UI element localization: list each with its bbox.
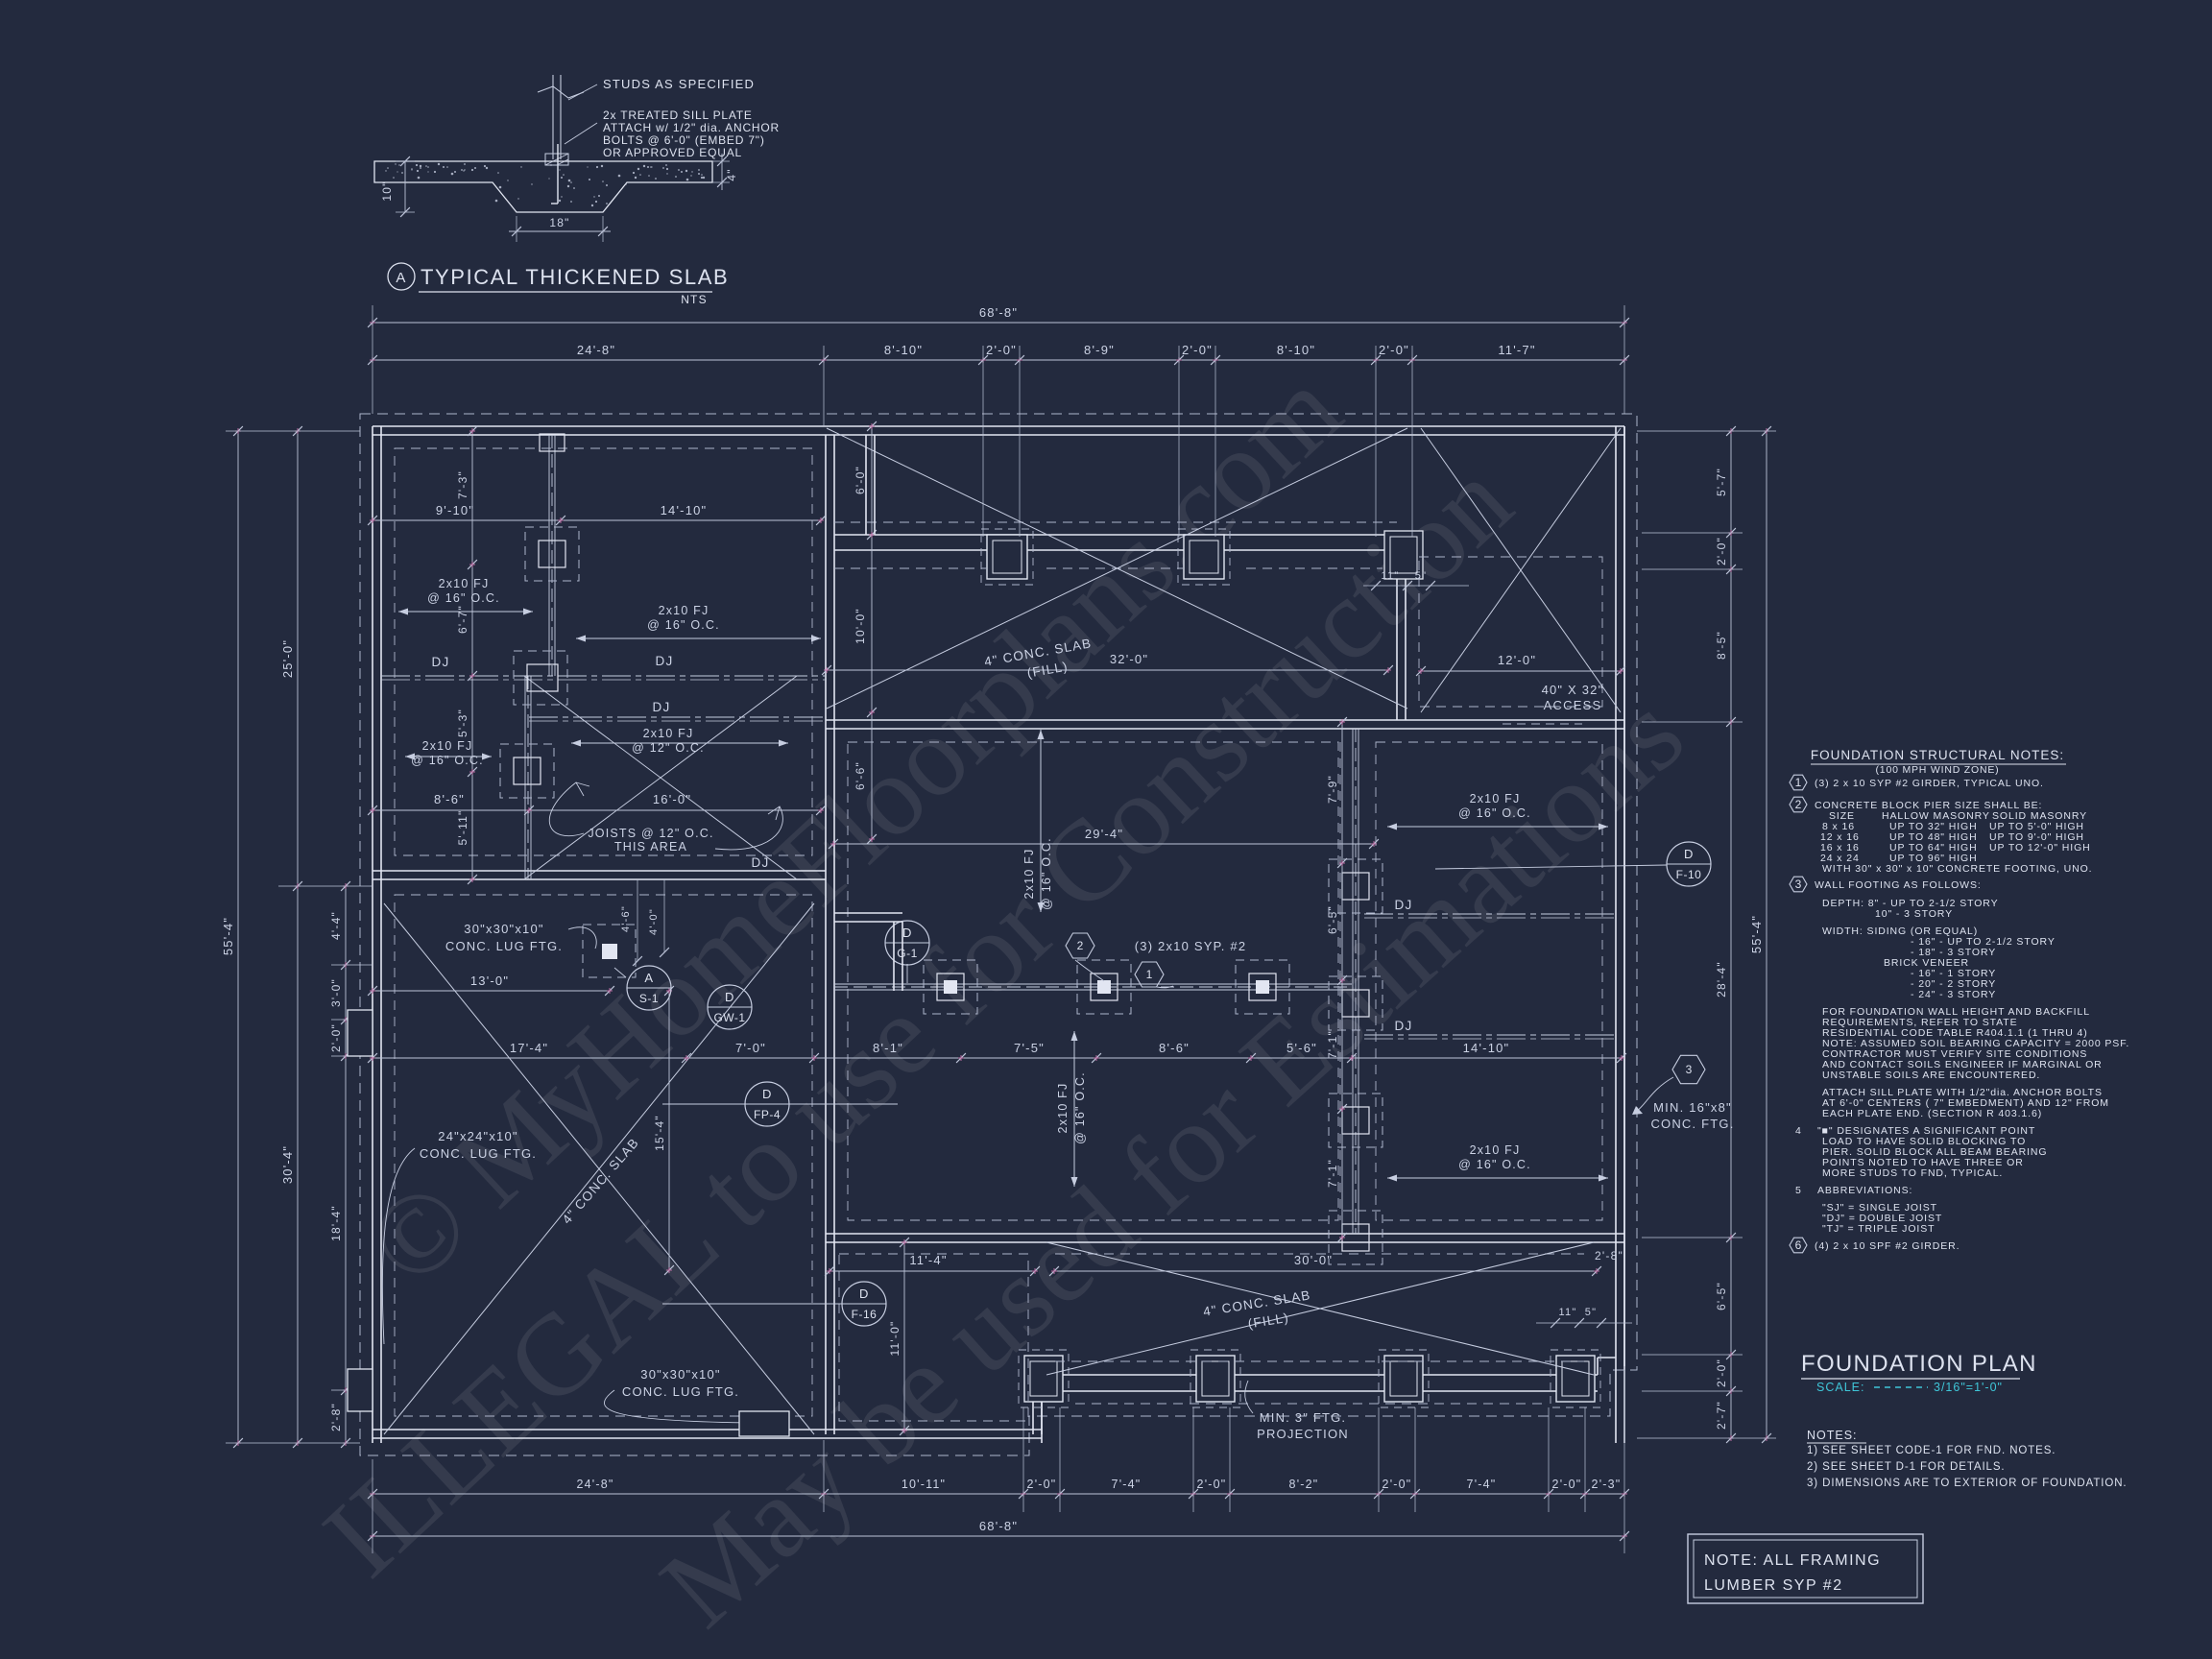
svg-text:2x10 FJ: 2x10 FJ (659, 604, 709, 617)
svg-text:2'-8": 2'-8" (329, 1403, 343, 1431)
svg-text:"TJ" = TRIPLE JOIST: "TJ" = TRIPLE JOIST (1822, 1223, 1935, 1235)
svg-text:MIN. 16"x8": MIN. 16"x8" (1653, 1100, 1732, 1115)
svg-text:4: 4 (1795, 1125, 1802, 1137)
svg-text:30"x30"x10": 30"x30"x10" (640, 1367, 720, 1382)
svg-text:NOTE: ALL FRAMING: NOTE: ALL FRAMING (1704, 1552, 1881, 1569)
svg-text:MORE STUDS TO FND, TYPICAL.: MORE STUDS TO FND, TYPICAL. (1822, 1167, 2003, 1179)
svg-text:10" - 3 STORY: 10" - 3 STORY (1875, 908, 1953, 920)
svg-text:8'-5": 8'-5" (1715, 631, 1728, 660)
svg-text:ABBREVIATIONS:: ABBREVIATIONS: (1817, 1185, 1912, 1196)
svg-text:2x10 FJ: 2x10 FJ (439, 577, 490, 590)
svg-text:2'-0": 2'-0" (329, 1023, 343, 1052)
svg-text:A: A (644, 971, 653, 985)
svg-text:D: D (859, 1286, 869, 1301)
svg-text:40" X 32": 40" X 32" (1542, 683, 1604, 697)
svg-text:@ 16" O.C.: @ 16" O.C. (1458, 806, 1531, 820)
svg-text:11'-4": 11'-4" (909, 1253, 947, 1267)
svg-text:5": 5" (1415, 570, 1427, 582)
svg-text:3'-0": 3'-0" (329, 978, 343, 1007)
svg-text:1) SEE SHEET CODE-1 FOR FND.: 1) SEE SHEET CODE-1 FOR FND. NOTES. (1807, 1445, 2056, 1456)
svg-text:(3) 2x10 SYP. #2: (3) 2x10 SYP. #2 (1135, 939, 1247, 953)
svg-text:6'-5": 6'-5" (1326, 905, 1339, 934)
svg-text:13'-0": 13'-0" (470, 974, 509, 988)
svg-text:FOUNDATION PLAN: FOUNDATION PLAN (1801, 1351, 2037, 1377)
svg-text:2x10 FJ: 2x10 FJ (643, 727, 694, 740)
svg-text:F-10: F-10 (1676, 868, 1702, 881)
svg-text:2'-7": 2'-7" (1715, 1401, 1728, 1430)
svg-text:5'-6": 5'-6" (1286, 1041, 1317, 1055)
svg-text:G-1: G-1 (897, 947, 918, 960)
svg-text:11'-0": 11'-0" (888, 1321, 902, 1357)
svg-text:8'-6": 8'-6" (1159, 1041, 1190, 1055)
svg-text:10": 10" (380, 180, 394, 201)
svg-text:@ 16" O.C.: @ 16" O.C. (1073, 1071, 1087, 1144)
svg-text:6'-0": 6'-0" (854, 466, 867, 494)
svg-text:GW-1: GW-1 (713, 1011, 745, 1024)
svg-text:3/16"=1'-0": 3/16"=1'-0" (1934, 1381, 2003, 1394)
svg-text:3: 3 (1795, 878, 1802, 891)
svg-text:@ 16" O.C.: @ 16" O.C. (427, 591, 500, 605)
svg-text:D: D (1684, 847, 1694, 861)
svg-text:2: 2 (1077, 939, 1084, 952)
svg-text:CONC. FTG.: CONC. FTG. (1650, 1117, 1734, 1131)
svg-text:F-16: F-16 (852, 1308, 878, 1321)
svg-text:11'-7": 11'-7" (1498, 343, 1535, 357)
svg-text:UP TO 12'-0" HIGH: UP TO 12'-0" HIGH (1989, 842, 2091, 854)
svg-text:4": 4" (725, 168, 738, 180)
svg-text:S-1: S-1 (639, 992, 659, 1005)
svg-text:5'-3": 5'-3" (456, 709, 469, 737)
svg-text:2x10 FJ: 2x10 FJ (1022, 849, 1036, 900)
svg-text:2'-0": 2'-0" (1379, 343, 1409, 357)
svg-text:24'-8": 24'-8" (577, 343, 615, 357)
svg-text:11": 11" (1382, 570, 1400, 582)
svg-text:2'-0": 2'-0" (986, 343, 1017, 357)
svg-text:8'-2": 8'-2" (1289, 1478, 1319, 1491)
svg-text:D: D (762, 1087, 772, 1101)
svg-text:2'-3": 2'-3" (1592, 1478, 1622, 1491)
svg-text:2x10 FJ: 2x10 FJ (422, 739, 473, 753)
svg-text:7'-4": 7'-4" (1467, 1478, 1497, 1491)
svg-text:29'-4": 29'-4" (1085, 827, 1123, 841)
svg-text:@ 16" O.C.: @ 16" O.C. (647, 618, 720, 632)
svg-text:ATTACH w/ 1/2" dia. ANCHOR: ATTACH w/ 1/2" dia. ANCHOR (603, 121, 780, 134)
svg-text:1: 1 (1146, 968, 1153, 981)
svg-text:2'-0": 2'-0" (1027, 1478, 1057, 1491)
svg-text:3: 3 (1686, 1063, 1693, 1076)
svg-text:@ 16" O.C.: @ 16" O.C. (1040, 837, 1053, 910)
svg-text:24"x24"x10": 24"x24"x10" (438, 1129, 517, 1143)
svg-text:D: D (902, 926, 912, 940)
svg-text:(3) 2 x 10 SYP #2 GIRDER, TYPI: (3) 2 x 10 SYP #2 GIRDER, TYPICAL UNO. (1815, 778, 2044, 789)
svg-text:@ 16" O.C.: @ 16" O.C. (411, 754, 484, 767)
svg-text:SCALE:: SCALE: (1816, 1381, 1864, 1394)
svg-text:MIN. 3" FTG.: MIN. 3" FTG. (1260, 1410, 1347, 1425)
svg-text:NTS: NTS (681, 293, 708, 306)
svg-text:7'-1": 7'-1" (1326, 1030, 1339, 1059)
svg-text:18": 18" (549, 216, 569, 229)
svg-text:8'-1": 8'-1" (873, 1041, 903, 1055)
svg-text:4'-4": 4'-4" (329, 911, 343, 940)
svg-text:2'-0": 2'-0" (1552, 1478, 1582, 1491)
svg-text:WALL FOOTING AS FOLLOWS:: WALL FOOTING AS FOLLOWS: (1815, 879, 1982, 891)
svg-text:32'-0": 32'-0" (1110, 652, 1148, 666)
svg-text:8'-10": 8'-10" (884, 343, 923, 357)
svg-text:2'-0": 2'-0" (1382, 1478, 1412, 1491)
svg-text:OR APPROVED EQUAL: OR APPROVED EQUAL (603, 146, 742, 159)
svg-text:7'-5": 7'-5" (1014, 1041, 1045, 1055)
svg-text:6'-7": 6'-7" (456, 605, 469, 634)
svg-text:30'-0": 30'-0" (1294, 1253, 1333, 1267)
svg-text:A: A (396, 270, 406, 286)
svg-text:30'-4": 30'-4" (280, 1145, 295, 1184)
svg-text:CONC. LUG FTG.: CONC. LUG FTG. (445, 939, 563, 953)
svg-text:(4) 2 x 10 SPF #2 GIRDER.: (4) 2 x 10 SPF #2 GIRDER. (1815, 1240, 1960, 1252)
svg-text:8'-10": 8'-10" (1277, 343, 1315, 357)
svg-text:10'-0": 10'-0" (854, 608, 867, 644)
svg-text:18'-4": 18'-4" (329, 1205, 343, 1241)
svg-text:ACCESS: ACCESS (1544, 698, 1602, 712)
svg-text:LUMBER SYP #2: LUMBER SYP #2 (1704, 1577, 1843, 1594)
svg-text:68'-8": 68'-8" (979, 1519, 1018, 1533)
svg-text:WITH 30" x 30" x 10" CONCRETE: WITH 30" x 30" x 10" CONCRETE FOOTING, U… (1822, 863, 2093, 875)
svg-text:DJ: DJ (432, 655, 450, 669)
svg-text:5'-7": 5'-7" (1715, 468, 1728, 496)
svg-text:6: 6 (1795, 1238, 1802, 1252)
svg-text:68'-8": 68'-8" (979, 305, 1018, 320)
svg-text:15'-4": 15'-4" (653, 1115, 666, 1151)
svg-text:7'-0": 7'-0" (735, 1041, 766, 1055)
svg-text:2'-0": 2'-0" (1715, 1358, 1728, 1387)
svg-text:- 24" - 3 STORY: - 24" - 3 STORY (1911, 989, 1996, 1000)
svg-text:2) SEE SHEET D-1 FOR DETAILS.: 2) SEE SHEET D-1 FOR DETAILS. (1807, 1461, 2006, 1473)
svg-text:55'-4": 55'-4" (221, 917, 235, 955)
svg-text:BOLTS @ 6'-0" (EMBED 7"): BOLTS @ 6'-0" (EMBED 7") (603, 133, 765, 147)
svg-text:1: 1 (1795, 776, 1802, 789)
svg-text:FP-4: FP-4 (754, 1108, 781, 1121)
svg-text:16'-0": 16'-0" (653, 792, 691, 806)
svg-text:TYPICAL THICKENED SLAB: TYPICAL THICKENED SLAB (421, 265, 729, 289)
svg-text:UNSTABLE SOILS ARE ENCOUNTERED: UNSTABLE SOILS ARE ENCOUNTERED. (1822, 1070, 2040, 1081)
svg-text:3) DIMENSIONS ARE TO EXTERIOR: 3) DIMENSIONS ARE TO EXTERIOR OF FOUNDAT… (1807, 1478, 2128, 1489)
svg-text:25'-0": 25'-0" (280, 639, 295, 678)
svg-text:2x10 FJ: 2x10 FJ (1056, 1083, 1070, 1134)
svg-text:4'-0": 4'-0" (648, 908, 660, 935)
svg-text:7'-4": 7'-4" (1112, 1478, 1142, 1491)
svg-text:10'-11": 10'-11" (902, 1478, 946, 1491)
svg-text:5": 5" (1585, 1307, 1597, 1318)
svg-text:STUDS AS SPECIFIED: STUDS AS SPECIFIED (603, 77, 755, 91)
svg-text:FOUNDATION STRUCTURAL NOTES:: FOUNDATION STRUCTURAL NOTES: (1811, 748, 2064, 762)
svg-text:CONC. LUG FTG.: CONC. LUG FTG. (420, 1146, 537, 1161)
svg-text:2'-0": 2'-0" (1715, 537, 1728, 565)
svg-text:55'-4": 55'-4" (1749, 915, 1764, 953)
svg-text:30"x30"x10": 30"x30"x10" (464, 922, 543, 936)
svg-text:(100 MPH WIND ZONE): (100 MPH WIND ZONE) (1876, 764, 2000, 776)
svg-text:JOISTS @ 12" O.C.: JOISTS @ 12" O.C. (588, 827, 713, 840)
svg-text:6'-6": 6'-6" (854, 761, 867, 790)
svg-text:CONC. LUG FTG.: CONC. LUG FTG. (622, 1384, 739, 1399)
svg-text:EACH PLATE END. (SECTION R 403: EACH PLATE END. (SECTION R 403.1.6) (1822, 1108, 2042, 1119)
svg-text:DJ: DJ (653, 700, 671, 714)
svg-text:9'-10": 9'-10" (436, 503, 474, 517)
svg-text:5'-11": 5'-11" (456, 810, 469, 846)
svg-text:2'-8": 2'-8" (1595, 1249, 1623, 1262)
svg-text:2'-0": 2'-0" (1182, 343, 1213, 357)
svg-text:@ 16" O.C.: @ 16" O.C. (1458, 1158, 1531, 1171)
svg-text:5: 5 (1795, 1185, 1802, 1196)
svg-text:NOTES:: NOTES: (1807, 1429, 1858, 1442)
svg-text:28'-4": 28'-4" (1715, 961, 1728, 998)
svg-text:DJ: DJ (752, 855, 770, 870)
svg-text:D: D (725, 990, 734, 1004)
svg-text:DJ: DJ (1395, 1019, 1413, 1033)
svg-text:14'-10": 14'-10" (1463, 1041, 1510, 1055)
svg-text:DJ: DJ (656, 654, 674, 668)
svg-text:17'-4": 17'-4" (510, 1041, 548, 1055)
svg-text:8'-9": 8'-9" (1084, 343, 1115, 357)
svg-text:6'-5": 6'-5" (1715, 1282, 1728, 1310)
svg-text:14'-10": 14'-10" (661, 503, 708, 517)
svg-text:7'-1": 7'-1" (1326, 1159, 1339, 1188)
svg-text:PROJECTION: PROJECTION (1257, 1427, 1349, 1441)
svg-text:8'-6": 8'-6" (434, 792, 465, 806)
svg-text:24'-8": 24'-8" (576, 1478, 613, 1491)
svg-text:2: 2 (1795, 798, 1802, 811)
svg-text:2x10 FJ: 2x10 FJ (1470, 792, 1521, 805)
svg-text:4'-6": 4'-6" (620, 905, 632, 932)
svg-text:7'-3": 7'-3" (456, 470, 469, 499)
svg-text:2x TREATED SILL PLATE: 2x TREATED SILL PLATE (603, 108, 753, 122)
svg-text:DJ: DJ (1395, 898, 1413, 912)
svg-text:2x10 FJ: 2x10 FJ (1470, 1143, 1521, 1157)
svg-text:12'-0": 12'-0" (1498, 653, 1536, 667)
svg-text:2'-0": 2'-0" (1197, 1478, 1227, 1491)
svg-text:11": 11" (1559, 1307, 1577, 1318)
svg-text:THIS AREA: THIS AREA (614, 840, 687, 854)
svg-text:7'-9": 7'-9" (1326, 775, 1339, 804)
